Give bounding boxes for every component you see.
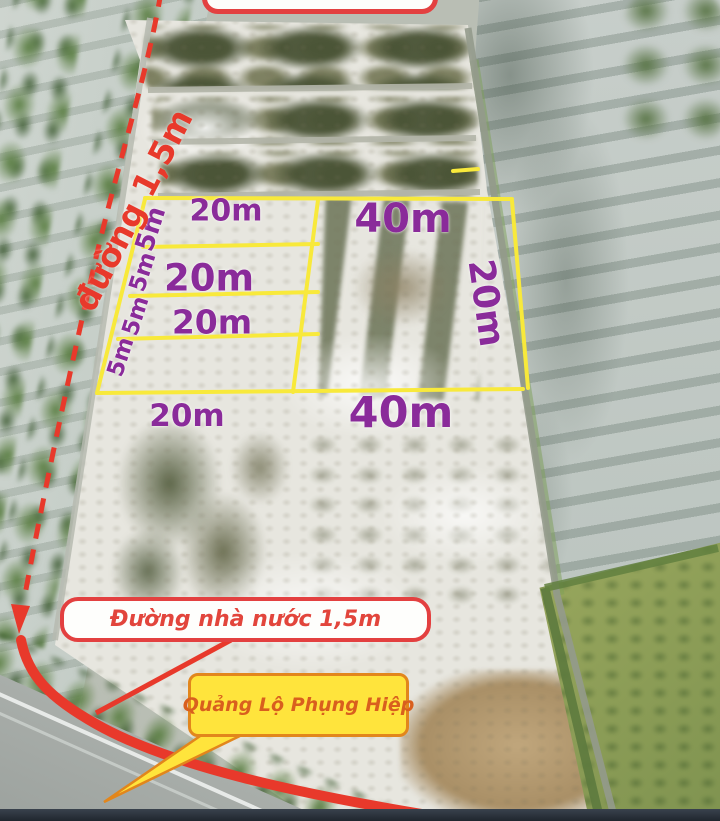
big-plot-bottom-width-label: 40m	[349, 388, 454, 438]
letterbox-bar	[0, 809, 720, 821]
row4-width-label: 20m	[149, 398, 224, 434]
big-plot-top-width-label: 40m	[354, 196, 451, 242]
row1-width-label: 20m	[189, 194, 262, 229]
row2-width-label: 20m	[164, 257, 254, 300]
row3-width-label: 20m	[172, 303, 252, 342]
tree-line-top-right	[616, 0, 720, 154]
state-road-callout: Đường nhà nước 1,5m	[60, 597, 431, 642]
land-plot-aerial-map: 20m 20m 20m 20m 5m 5m 5m 5m 40m 40m 20m …	[0, 0, 720, 821]
top-callout-box	[202, 0, 438, 14]
highway-callout: Quảng Lộ Phụng Hiệp	[188, 673, 409, 737]
